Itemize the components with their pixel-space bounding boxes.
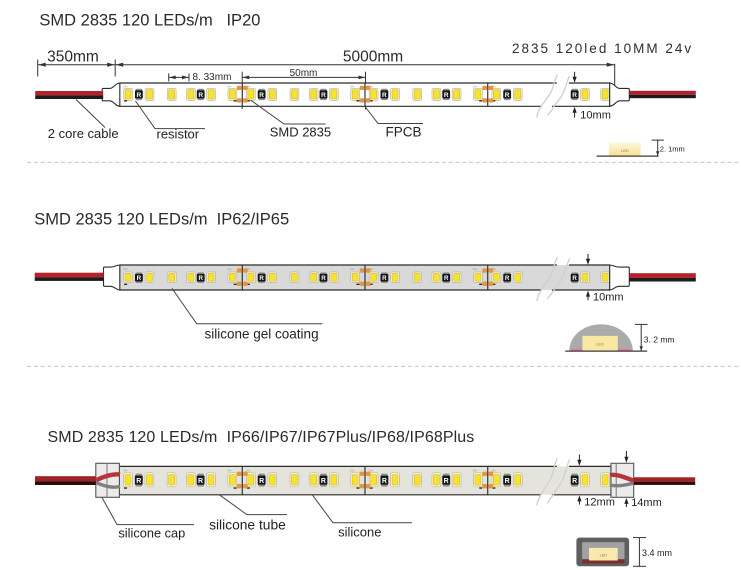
svg-text:12mm: 12mm [584, 496, 615, 508]
svg-text:5000mm: 5000mm [343, 49, 403, 66]
svg-text:2 core cable: 2 core cable [48, 126, 119, 141]
svg-text:50mm: 50mm [290, 68, 318, 79]
svg-text:3. 2 mm: 3. 2 mm [644, 334, 675, 344]
svg-text:350mm: 350mm [47, 49, 99, 66]
svg-text:LED: LED [621, 149, 629, 153]
svg-text:FPCB: FPCB [386, 124, 422, 139]
svg-text:10mm: 10mm [593, 291, 624, 303]
svg-text:3.4 mm: 3.4 mm [642, 548, 672, 558]
svg-text:14mm: 14mm [631, 497, 662, 509]
svg-text:silicone tube: silicone tube [209, 518, 286, 533]
svg-text:SMD 2835 120 LEDs/m IP20: SMD 2835 120 LEDs/m IP20 [39, 12, 260, 30]
svg-text:LED: LED [596, 342, 604, 346]
svg-text:silicone gel coating: silicone gel coating [205, 326, 319, 341]
svg-text:silicone: silicone [338, 524, 381, 539]
svg-text:SMD 2835 120 LEDs/m IP62/IP65: SMD 2835 120 LEDs/m IP62/IP65 [34, 211, 289, 229]
svg-text:10mm: 10mm [580, 109, 611, 121]
svg-text:SMD 2835 120 LEDs/m IP66/IP67: SMD 2835 120 LEDs/m IP66/IP67/IP67Plus/I… [48, 429, 475, 446]
svg-text:silicone cap: silicone cap [118, 525, 185, 540]
svg-text:resistor: resistor [157, 127, 200, 142]
svg-text:SMD 2835: SMD 2835 [270, 124, 331, 139]
svg-text:LED: LED [600, 553, 608, 557]
svg-text:8. 33mm: 8. 33mm [193, 72, 232, 83]
svg-text:2835 120led 10MM 24v: 2835 120led 10MM 24v [512, 41, 693, 56]
svg-text:2. 1mm: 2. 1mm [660, 145, 685, 154]
